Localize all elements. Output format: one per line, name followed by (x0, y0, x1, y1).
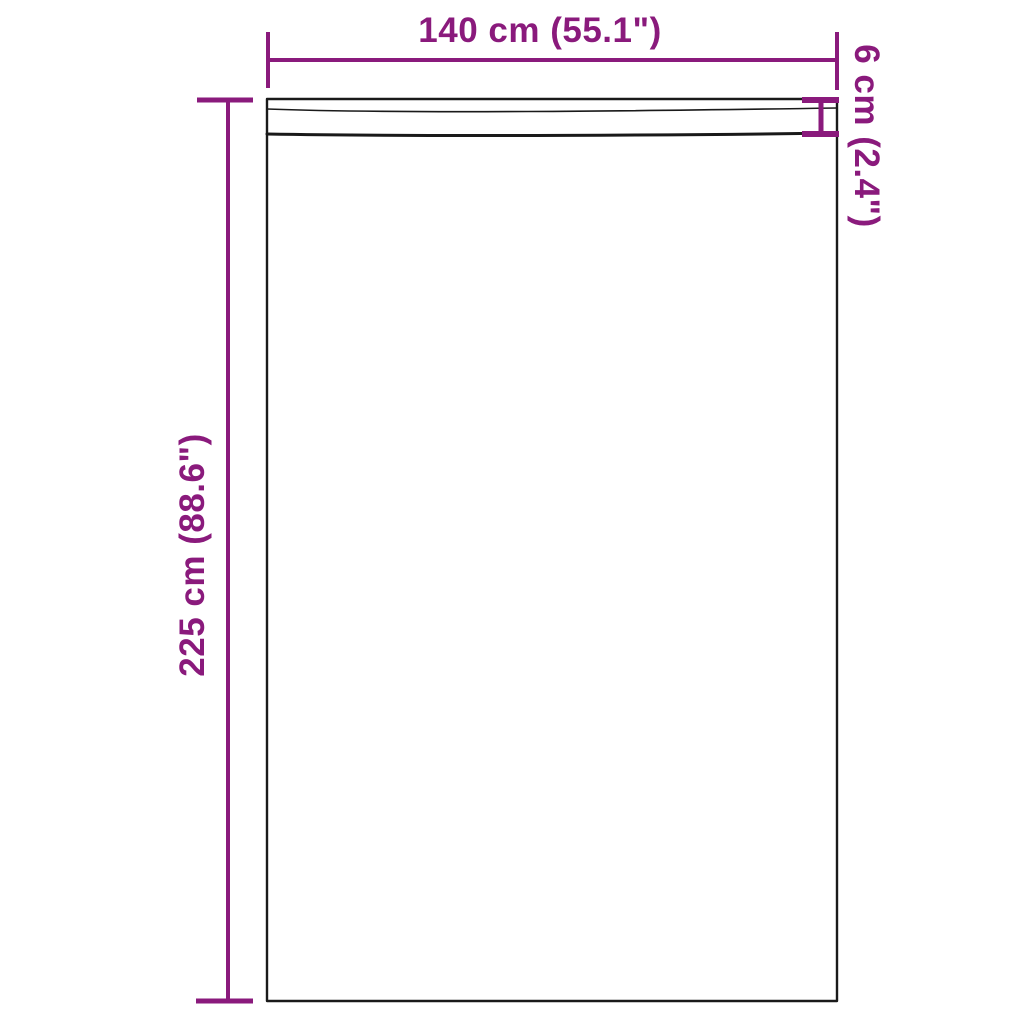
header-dimension-bracket (802, 100, 839, 134)
height-dimension-label: 225 cm (88.6") (173, 433, 213, 676)
width-dimension-label: 140 cm (55.1") (418, 11, 661, 51)
product-dimension-diagram: 140 cm (55.1") 225 cm (88.6") 6 cm (2.4"… (0, 0, 1024, 1024)
header-band-seam (267, 108, 837, 136)
header-dimension-label: 6 cm (2.4") (846, 44, 886, 228)
curtain-panel-outline (267, 99, 837, 1001)
